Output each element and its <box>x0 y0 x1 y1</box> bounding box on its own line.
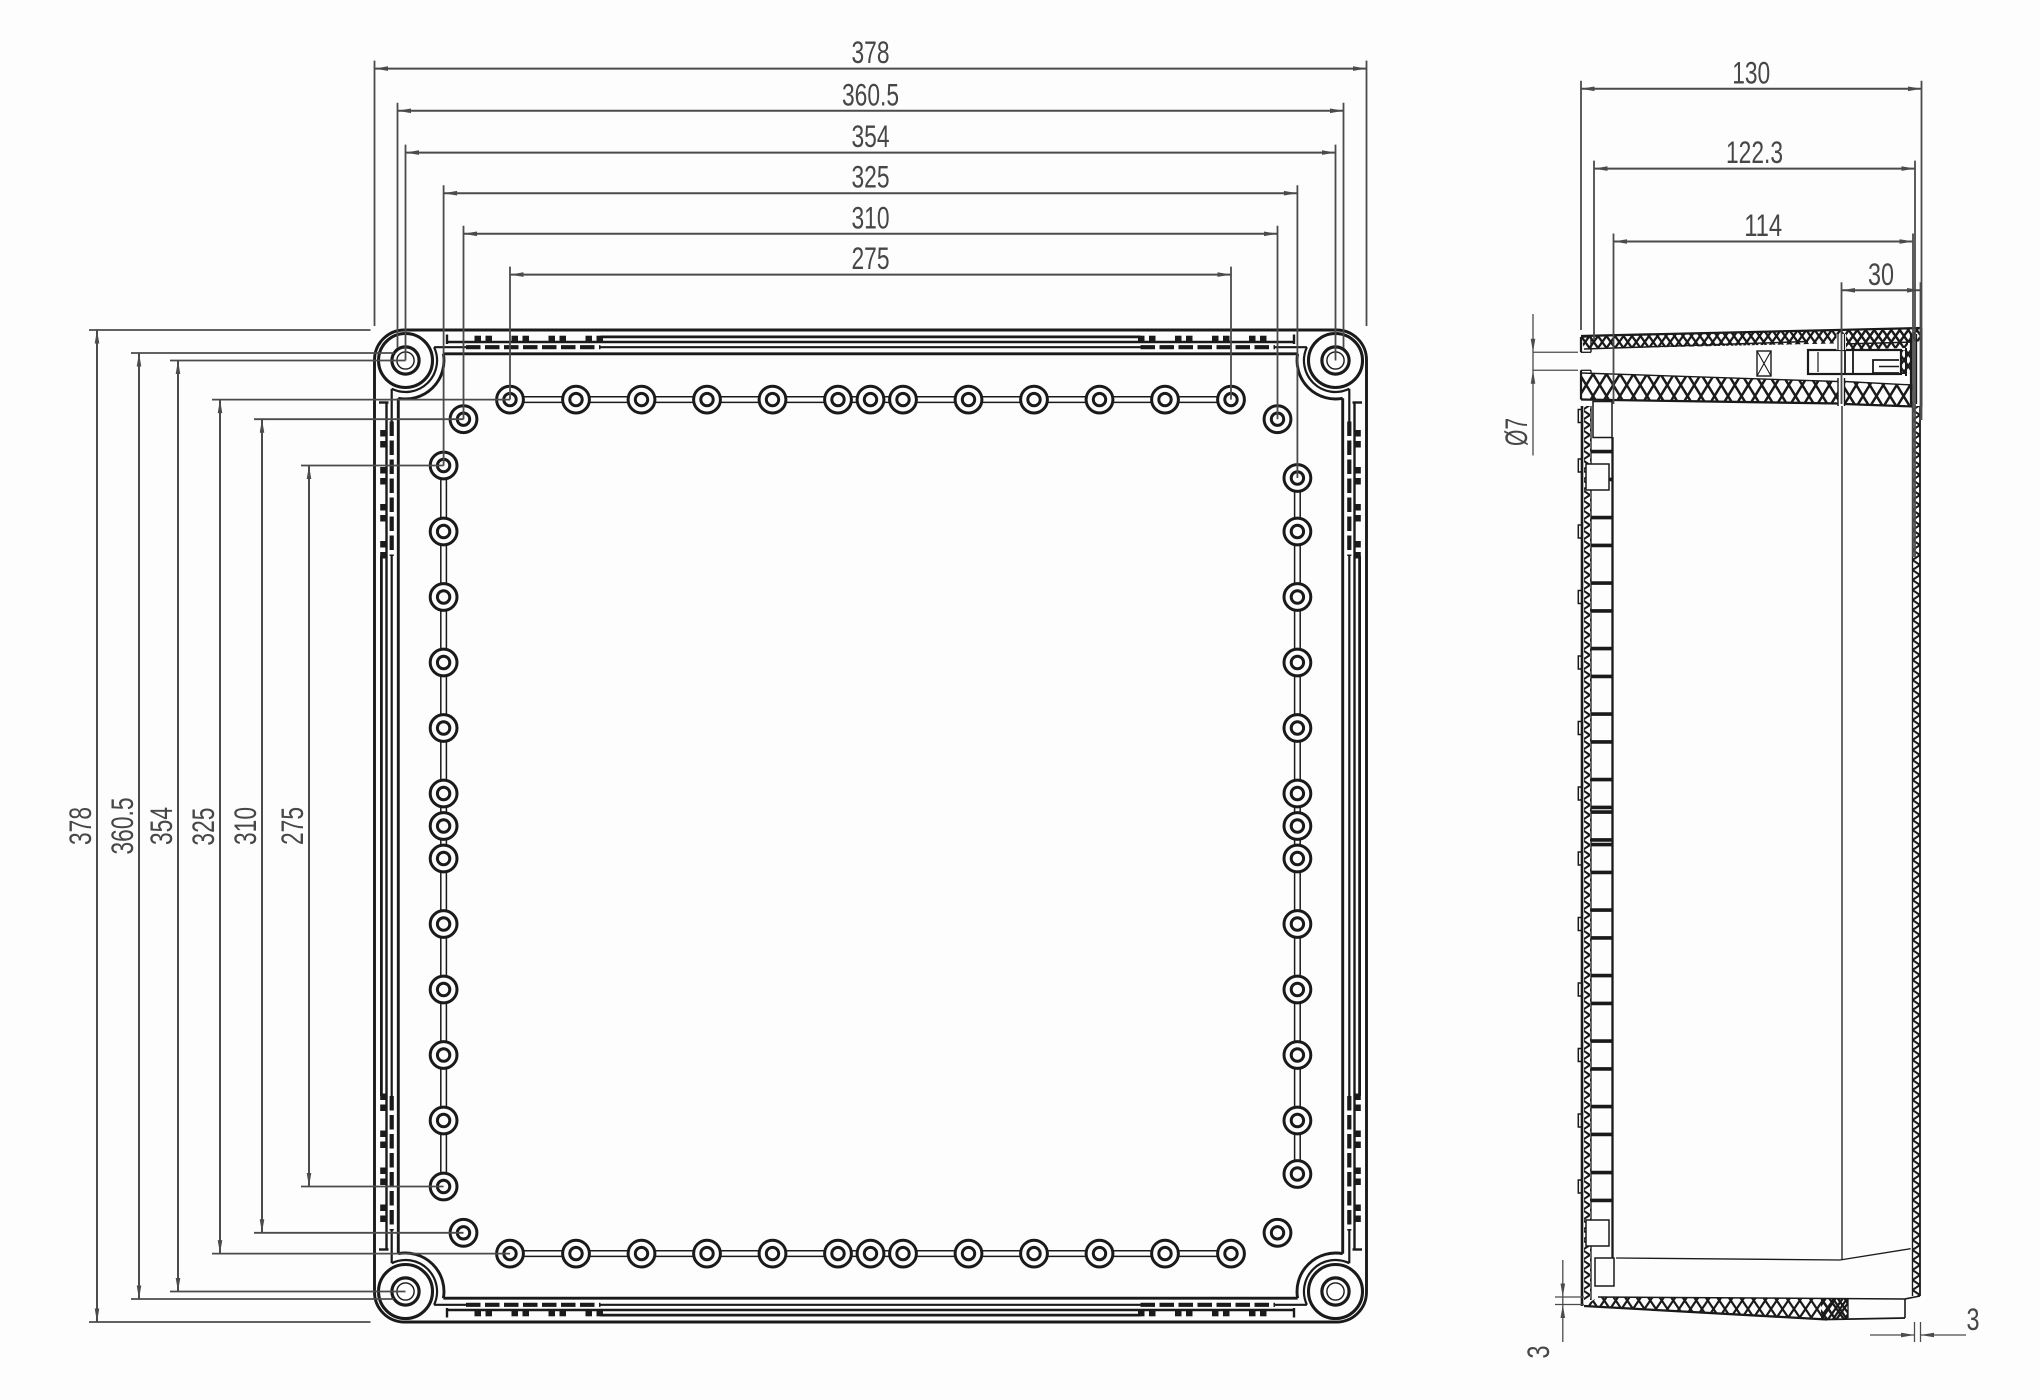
svg-text:130: 130 <box>1732 54 1770 90</box>
svg-text:354: 354 <box>143 807 179 845</box>
svg-text:275: 275 <box>852 240 890 276</box>
svg-text:275: 275 <box>274 807 310 845</box>
svg-text:378: 378 <box>62 807 98 845</box>
svg-text:360.5: 360.5 <box>104 798 140 855</box>
svg-text:122.3: 122.3 <box>1726 134 1783 170</box>
svg-text:3: 3 <box>1967 1301 1980 1337</box>
svg-text:378: 378 <box>852 34 890 70</box>
svg-text:360.5: 360.5 <box>842 76 899 112</box>
svg-text:3: 3 <box>1520 1346 1556 1359</box>
svg-text:Ø7: Ø7 <box>1498 418 1534 446</box>
svg-text:325: 325 <box>185 808 221 846</box>
svg-text:114: 114 <box>1744 207 1782 243</box>
svg-text:30: 30 <box>1868 256 1894 292</box>
svg-text:354: 354 <box>852 118 890 154</box>
svg-text:325: 325 <box>852 159 890 195</box>
svg-text:310: 310 <box>852 199 890 235</box>
svg-text:310: 310 <box>227 807 263 845</box>
